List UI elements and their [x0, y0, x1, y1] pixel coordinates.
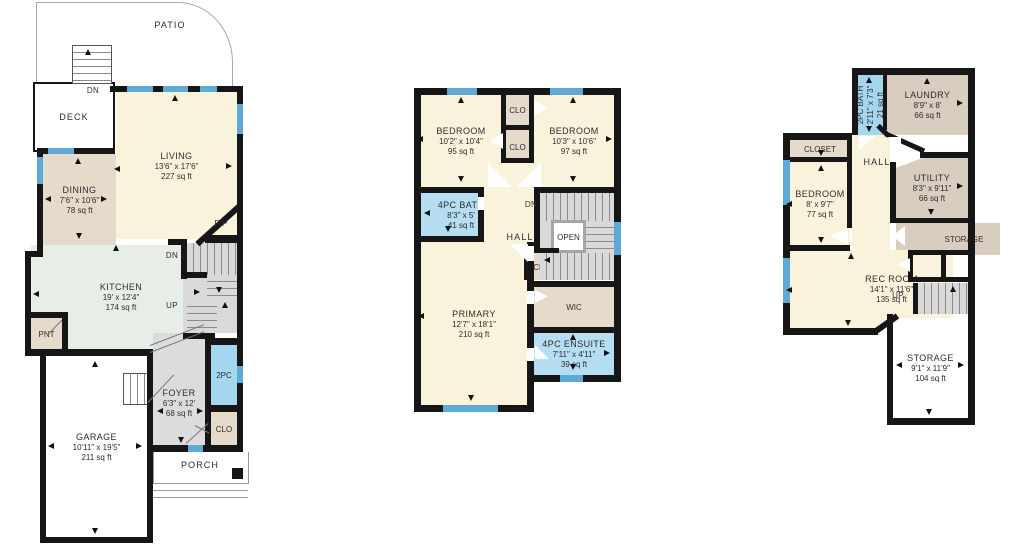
wall — [205, 338, 211, 452]
dimension-arrow — [786, 287, 792, 293]
porch-label: PORCH — [158, 461, 242, 470]
room-area: 77 sq ft — [807, 210, 833, 219]
room-powder: 2PC — [211, 345, 237, 405]
room-dims: 6'3" x 12' — [163, 399, 195, 408]
dimension-arrow — [92, 361, 98, 367]
porch-step-line — [152, 497, 248, 498]
fireplace-label: F/P — [206, 219, 236, 228]
dimension-arrow — [92, 528, 98, 534]
wall — [783, 133, 852, 140]
dimension-arrow — [468, 395, 474, 401]
dimension-arrow — [445, 226, 451, 232]
room-dims: 8'9" x 8' — [914, 101, 942, 110]
storage-label: STORAGE — [945, 235, 984, 244]
powder-label: 2PC — [216, 371, 232, 380]
wall — [25, 251, 31, 355]
dimension-arrow — [226, 163, 232, 169]
dimension-arrow — [570, 176, 576, 182]
window — [48, 148, 74, 154]
window — [783, 258, 790, 303]
stair-treads — [207, 275, 237, 297]
wall — [920, 152, 968, 158]
hall-label: HALL — [504, 233, 536, 242]
wall — [527, 327, 621, 333]
dimension-arrow — [197, 408, 203, 414]
dimension-arrow — [458, 97, 464, 103]
door-gap — [478, 197, 484, 210]
floorplan-canvas: PATIO DECK DN LIVING 13'6" x 17'6" 227 s… — [0, 0, 1024, 545]
door-gap — [527, 246, 534, 261]
room-living: LIVING 13'6" x 17'6" 227 sq ft — [116, 92, 237, 239]
room-name: LIVING — [161, 151, 193, 161]
dimension-arrow — [928, 209, 934, 215]
dimension-arrow — [786, 201, 792, 207]
deck-label: DECK — [59, 112, 88, 122]
room-wic: WIC — [534, 287, 614, 327]
room-bedroom-right: BEDROOM 10'3" x 10'6" 97 sq ft — [534, 95, 614, 187]
room-storage: STORAGE 9'1" x 11'9" 104 sq ft — [893, 318, 968, 418]
room-area: 66 sq ft — [919, 194, 945, 203]
window — [200, 86, 217, 92]
room-dims: 8'3" x 5' — [447, 211, 475, 220]
wall — [414, 236, 484, 242]
dimension-arrow — [570, 97, 576, 103]
dimension-arrow — [845, 320, 851, 326]
dimension-arrow — [570, 334, 576, 340]
wall — [783, 245, 850, 251]
bath-2pc-label: 2PC BATH 2'11" x 7'3" 21 sq ft — [855, 73, 885, 137]
wall — [237, 86, 243, 452]
room-laundry: LAUNDRY 8'9" x 8' 66 sq ft — [887, 75, 968, 135]
room-name: 2PC BATH — [856, 73, 865, 137]
room-dims: 19' x 12'4" — [103, 293, 140, 302]
window — [550, 88, 583, 95]
open-label: OPEN — [557, 233, 580, 242]
deck-dn-label: DN — [83, 86, 103, 95]
dimension-arrow — [75, 158, 81, 164]
room-name: KITCHEN — [100, 282, 142, 292]
stair-treads — [540, 193, 614, 221]
window — [163, 86, 188, 92]
dimension-arrow — [101, 196, 107, 202]
wall — [62, 318, 68, 349]
window — [447, 88, 477, 95]
room-name: FOYER — [162, 388, 195, 398]
wic-label: WIC — [566, 303, 582, 312]
dimension-arrow — [818, 165, 824, 171]
wall — [501, 125, 534, 130]
room-closet: CLO — [211, 412, 237, 445]
dimension-arrow — [957, 183, 963, 189]
wall — [941, 250, 946, 280]
dimension-arrow — [172, 95, 178, 101]
room-name: BEDROOM — [549, 126, 598, 136]
stair-direction-arrow — [950, 286, 956, 292]
hall-label: HALL — [861, 158, 893, 167]
dimension-arrow — [818, 237, 824, 243]
window — [443, 405, 498, 412]
stairs-dn-label: DN — [518, 200, 544, 209]
clo-label: CLO — [509, 143, 525, 152]
stair-treads — [124, 374, 149, 404]
wall — [968, 68, 975, 425]
room-name: LAUNDRY — [905, 90, 951, 100]
dimension-arrow — [424, 210, 430, 216]
room-area: 211 sq ft — [81, 453, 111, 462]
room-primary: PRIMARY 12'7" x 18'1" 210 sq ft — [421, 242, 527, 405]
stairs-up-label: UP — [888, 291, 908, 300]
wall — [847, 140, 852, 228]
front-door — [188, 445, 203, 452]
stair-direction-arrow — [85, 49, 91, 55]
clo-label: CLO — [509, 106, 525, 115]
room-dims: 8' x 9'7" — [806, 200, 834, 209]
wall — [913, 283, 918, 314]
porch-step-line — [152, 483, 248, 484]
stair-direction-arrow — [544, 257, 550, 263]
dimension-arrow — [604, 350, 610, 356]
stair-treads — [586, 221, 614, 253]
wall — [205, 235, 243, 243]
basement-hall — [852, 135, 890, 250]
room-dims: 13'6" x 17'6" — [155, 162, 199, 171]
wall — [783, 328, 878, 335]
wall — [414, 88, 621, 95]
room-dims: 10'2" x 10'4" — [439, 137, 483, 146]
room-name: GARAGE — [76, 432, 117, 442]
wall — [908, 250, 968, 255]
dimension-arrow — [76, 233, 82, 239]
dimension-arrow — [570, 364, 576, 370]
room-area: 21 sq ft — [876, 73, 885, 137]
window — [560, 375, 583, 382]
dimension-arrow — [458, 176, 464, 182]
dimension-arrow — [924, 78, 930, 84]
window — [127, 86, 153, 92]
dimension-arrow — [136, 443, 142, 449]
room-area: 227 sq ft — [161, 172, 192, 181]
wall — [414, 187, 484, 193]
wall — [890, 162, 896, 223]
window — [237, 104, 243, 134]
room-name: DINING — [63, 185, 97, 195]
room-dims: 7'6" x 10'6" — [60, 196, 99, 205]
room-dims: 9'1" x 11'9" — [911, 364, 950, 373]
wall — [527, 281, 621, 287]
room-name: 4PC ENSUITE — [542, 339, 605, 349]
dimension-arrow — [848, 253, 854, 259]
wall — [527, 375, 534, 412]
stairs-dn-label: DN — [160, 251, 184, 260]
dimension-arrow — [896, 362, 902, 368]
room-area: 78 sq ft — [66, 206, 92, 215]
stair-direction-arrow — [222, 302, 228, 308]
patio-outline — [36, 2, 233, 87]
dimension-arrow — [178, 437, 184, 443]
dimension-arrow — [417, 136, 423, 142]
room-dims: 8'3" x 9'11" — [913, 184, 952, 193]
dimension-arrow — [113, 245, 119, 251]
dimension-arrow — [957, 100, 963, 106]
window — [783, 160, 790, 205]
wall — [501, 158, 534, 163]
room-dims: 2'11" x 7'3" — [866, 73, 875, 137]
room-dims: 7'11" x 4'11" — [553, 350, 596, 359]
stair-treads — [73, 46, 111, 83]
room-dims: 12'7" x 18'1" — [452, 320, 496, 329]
door-gap — [527, 348, 534, 361]
dimension-arrow — [818, 150, 824, 156]
garage-steps — [123, 373, 150, 405]
room-name: BEDROOM — [436, 126, 485, 136]
room-area: 210 sq ft — [459, 330, 490, 339]
stairs-up-label: UP — [160, 301, 184, 310]
room-name: PRIMARY — [452, 309, 496, 319]
wall — [181, 272, 207, 278]
dimension-arrow — [606, 136, 612, 142]
window — [237, 366, 243, 383]
wall — [534, 187, 621, 193]
wall — [887, 418, 975, 425]
dimension-arrow — [45, 196, 51, 202]
room-name: UTILITY — [914, 173, 950, 183]
wall — [890, 218, 968, 223]
wall — [25, 349, 153, 356]
wall — [40, 537, 153, 543]
stair-treads — [187, 243, 237, 275]
wall — [887, 314, 893, 425]
dimension-arrow — [33, 291, 39, 297]
room-area: 66 sq ft — [914, 111, 940, 120]
porch-step-line — [152, 490, 248, 491]
closet-label: CLO — [216, 425, 232, 434]
room-area: 104 sq ft — [915, 374, 946, 383]
wall — [40, 356, 46, 543]
patio-label: PATIO — [140, 21, 200, 30]
window — [37, 157, 43, 184]
window — [614, 222, 621, 255]
dimension-arrow — [926, 409, 932, 415]
wall — [908, 277, 975, 282]
room-area: 95 sq ft — [448, 147, 474, 156]
room-name: STORAGE — [907, 353, 954, 363]
dimension-arrow — [194, 289, 200, 295]
wall — [205, 405, 243, 412]
room-dims: 10'11" x 19'5" — [73, 443, 121, 452]
room-area: 41 sq ft — [448, 221, 474, 230]
stair-treads — [918, 283, 968, 314]
stair-treads — [540, 253, 614, 280]
dimension-arrow — [157, 408, 163, 414]
room-name: BEDROOM — [795, 189, 844, 199]
room-dims: 10'3" x 10'6" — [552, 137, 596, 146]
room-clo-top: CLO — [506, 95, 529, 125]
dimension-arrow — [418, 313, 424, 319]
dimension-arrow — [958, 362, 964, 368]
room-area: 97 sq ft — [561, 147, 587, 156]
stair-direction-arrow — [216, 287, 222, 293]
deck-staircase — [72, 45, 112, 84]
door-gap — [527, 291, 534, 304]
room-area: 68 sq ft — [166, 409, 192, 418]
dimension-arrow — [114, 166, 120, 172]
room-area: 174 sq ft — [106, 303, 137, 312]
wall — [790, 157, 850, 162]
dimension-arrow — [48, 443, 54, 449]
